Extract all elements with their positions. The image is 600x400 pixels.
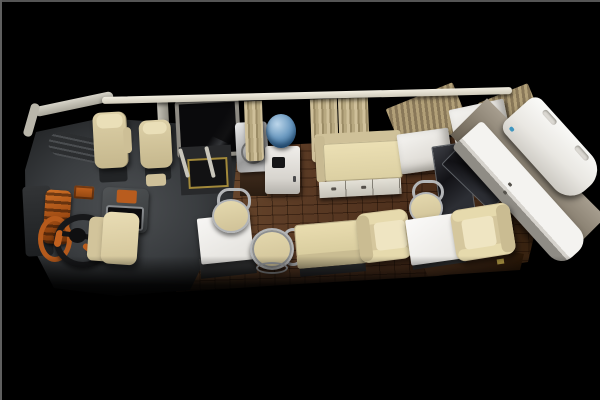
seat-armrest — [123, 127, 132, 153]
curtain — [244, 101, 264, 162]
console-orange-insert — [116, 190, 137, 204]
dispenser-slot — [272, 157, 285, 168]
base-yellow-tag — [497, 259, 505, 265]
wheel-hub — [69, 228, 86, 243]
drawer-handle — [331, 187, 336, 190]
drawer-handle — [361, 186, 366, 189]
driver-seat — [86, 210, 142, 269]
water-bottle — [266, 114, 296, 148]
render-canvas — [0, 0, 600, 400]
passenger-seat — [88, 111, 136, 187]
stool-base — [256, 262, 288, 274]
chaise-sofa — [314, 130, 405, 201]
seat-headrest — [96, 113, 123, 128]
armchair-cushion — [373, 219, 407, 251]
seat-headrest — [142, 121, 167, 134]
dispenser-handle — [293, 176, 296, 182]
jump-seat — [146, 173, 167, 186]
door-hinge — [541, 109, 558, 126]
armchair — [449, 202, 516, 263]
armchair-cushion — [461, 215, 497, 250]
cluster-panel — [74, 185, 95, 199]
cafe-chair-seat — [212, 199, 250, 233]
door-hinge — [573, 144, 590, 161]
armchair — [355, 208, 413, 264]
chaise-cushion — [323, 140, 403, 182]
dispenser-cabinet — [265, 146, 300, 194]
door-latch-dot — [509, 126, 515, 132]
seat-cushion — [100, 211, 140, 265]
